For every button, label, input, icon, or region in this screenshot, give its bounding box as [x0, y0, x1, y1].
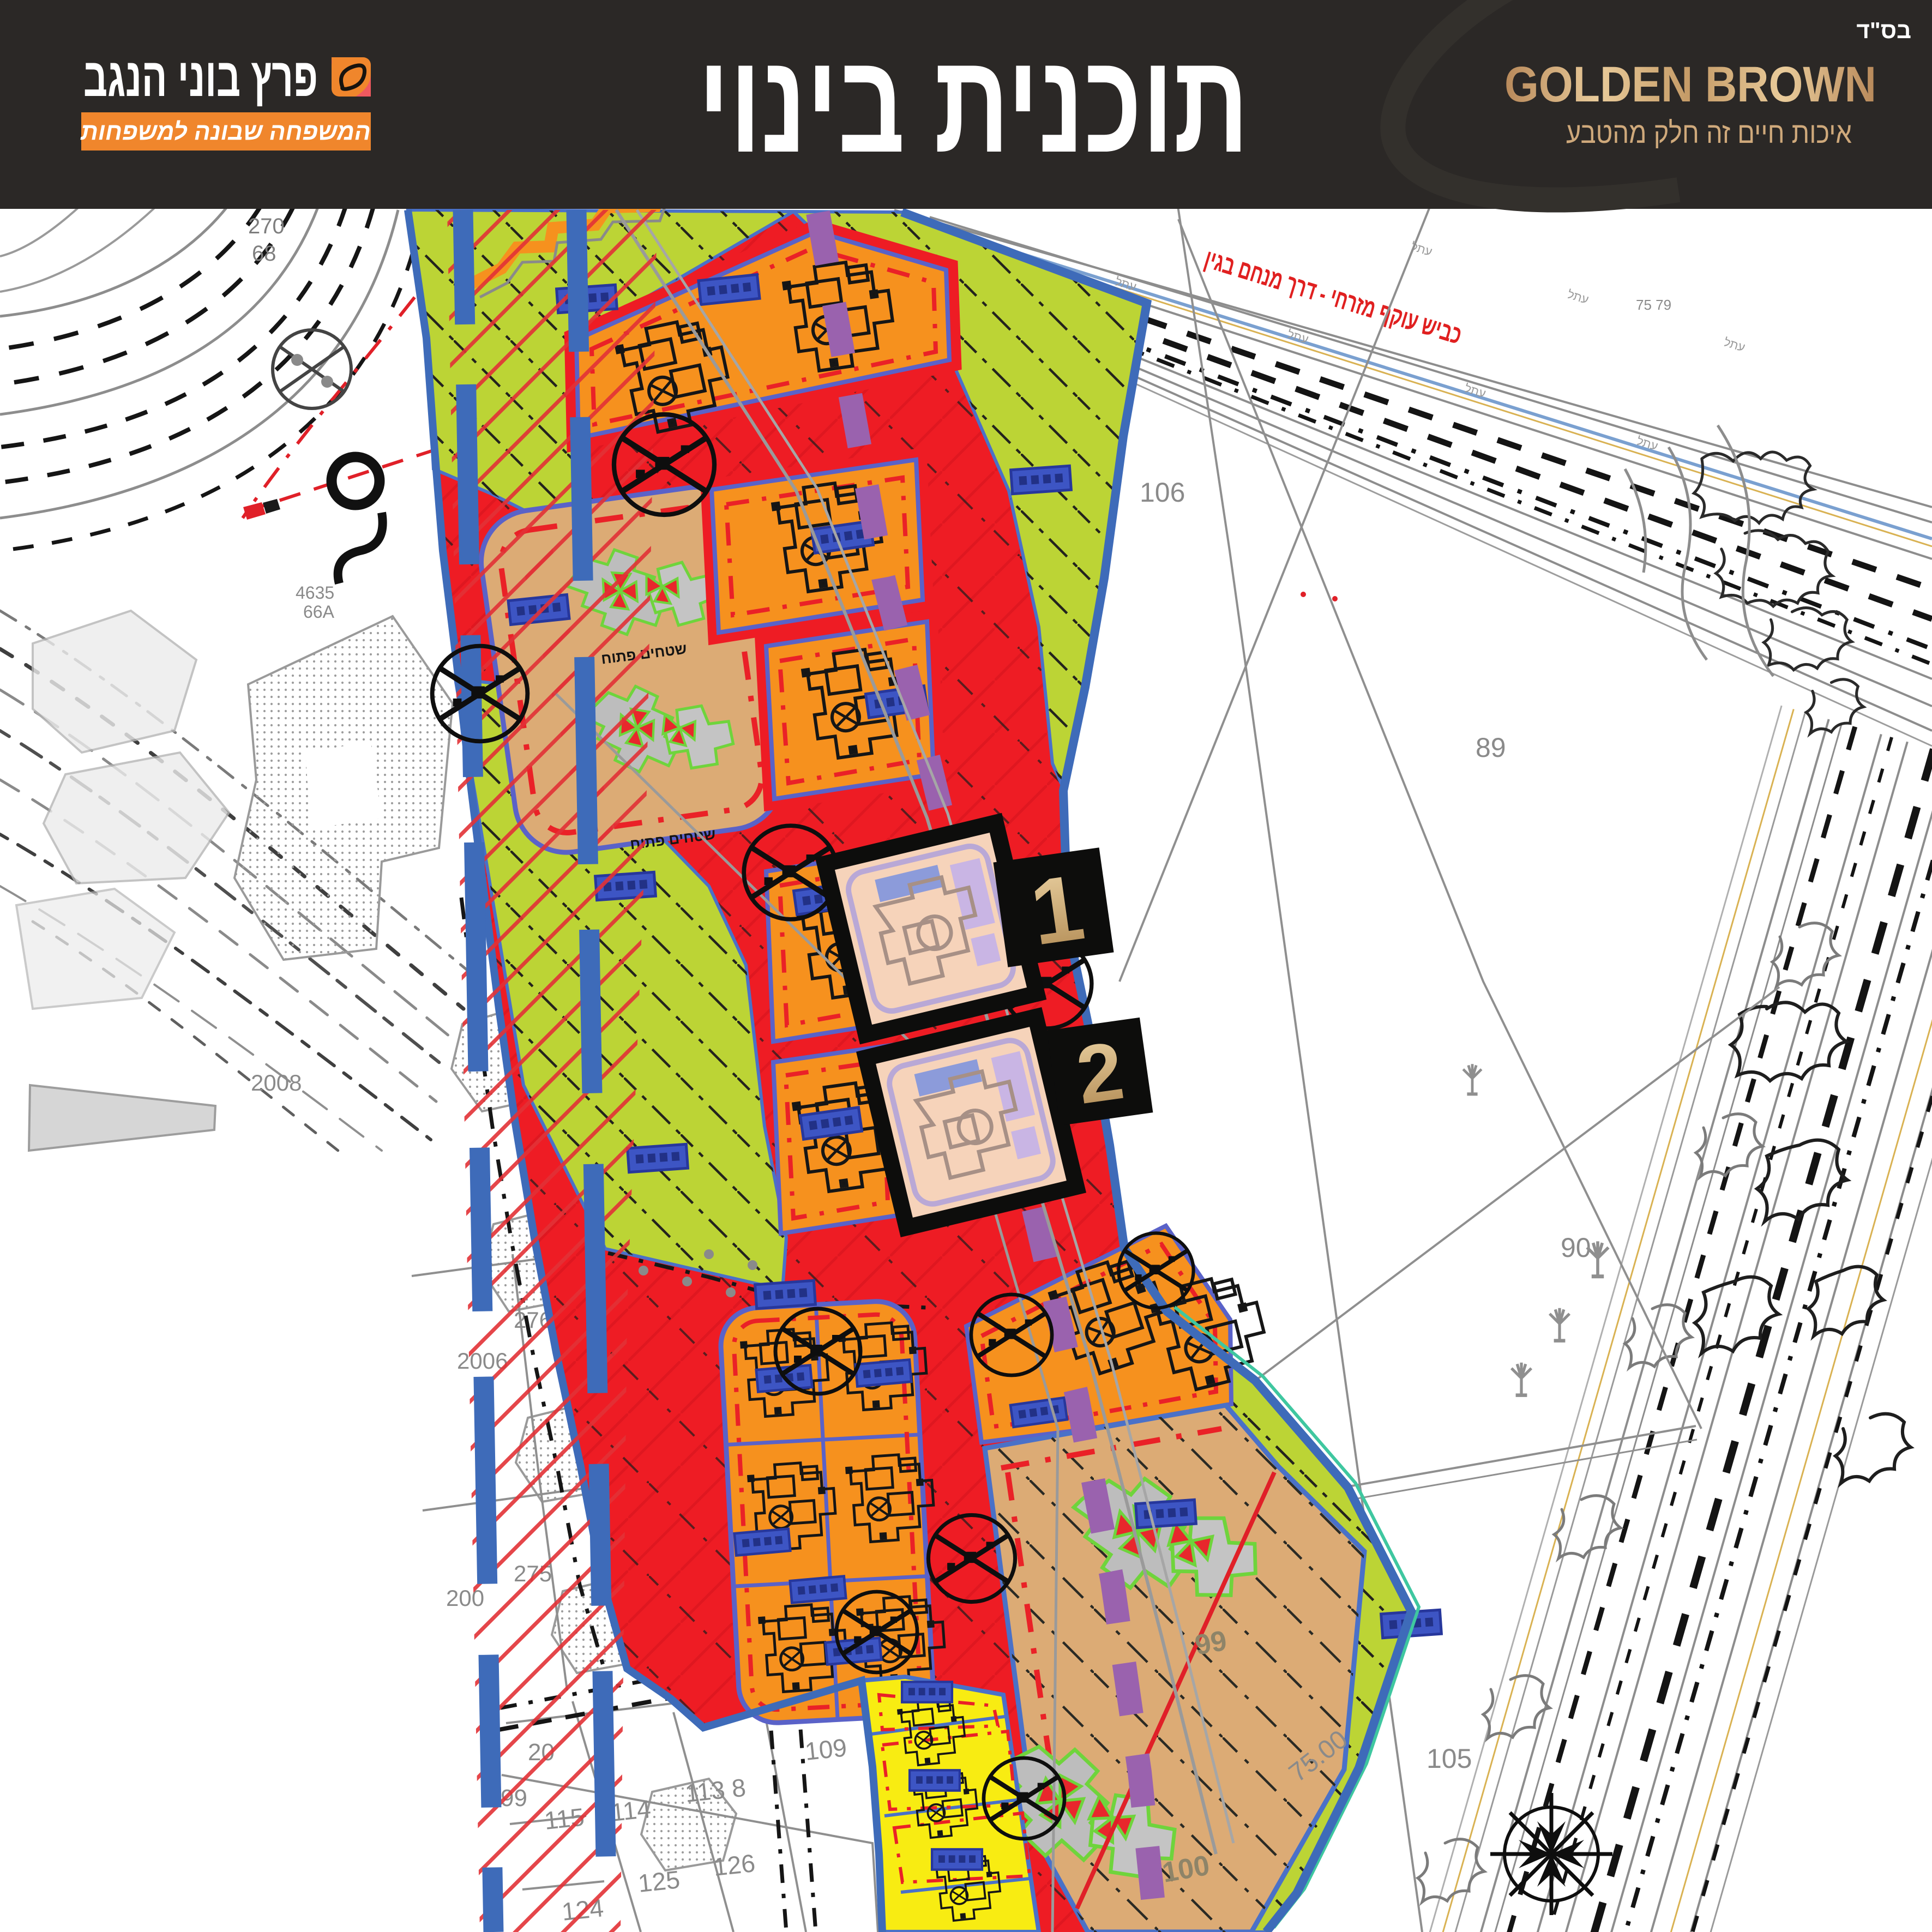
svg-text:פרץ בוני הנגב: פרץ בוני הנגב	[83, 47, 318, 108]
svg-text:89: 89	[1476, 732, 1506, 763]
svg-text:125: 125	[637, 1865, 682, 1898]
svg-text:68: 68	[252, 242, 276, 266]
svg-text:270: 270	[248, 214, 285, 238]
svg-text:66A: 66A	[303, 602, 335, 622]
svg-text:המשפחה שבונה למשפחות: המשפחה שבונה למשפחות	[80, 118, 371, 145]
svg-text:2008: 2008	[251, 1070, 302, 1096]
svg-text:90: 90	[1561, 1232, 1591, 1263]
svg-text:4635: 4635	[296, 583, 334, 603]
svg-text:איכות חיים זה חלק מהטבע: איכות חיים זה חלק מהטבע	[1566, 117, 1852, 149]
svg-text:75 79: 75 79	[1636, 297, 1671, 313]
svg-text:בס"ד: בס"ד	[1856, 17, 1911, 43]
svg-text:106: 106	[1140, 477, 1185, 508]
svg-text:תוכנית בינוי: תוכנית בינוי	[698, 24, 1249, 182]
svg-text:GOLDEN BROWN: GOLDEN BROWN	[1504, 57, 1876, 112]
svg-text:99: 99	[1193, 1625, 1229, 1662]
svg-text:126: 126	[712, 1849, 757, 1881]
svg-text:109: 109	[804, 1733, 848, 1766]
svg-text:105: 105	[1427, 1743, 1472, 1774]
